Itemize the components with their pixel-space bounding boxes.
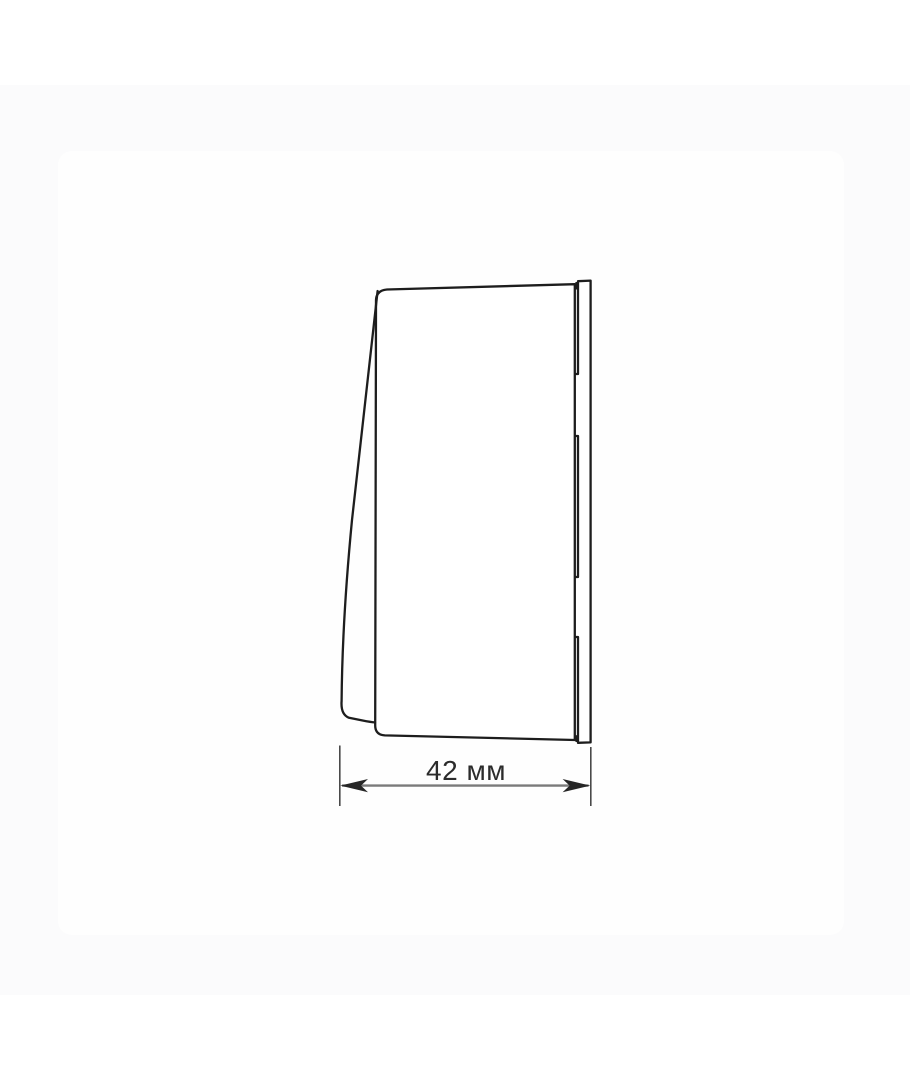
switch-body-outline: [375, 284, 575, 740]
rocker-outline: [341, 291, 377, 722]
mounting-plate-outline: [574, 281, 591, 743]
dimension-label: 42 мм: [426, 755, 506, 786]
technical-drawing: 42 мм: [0, 0, 910, 1080]
